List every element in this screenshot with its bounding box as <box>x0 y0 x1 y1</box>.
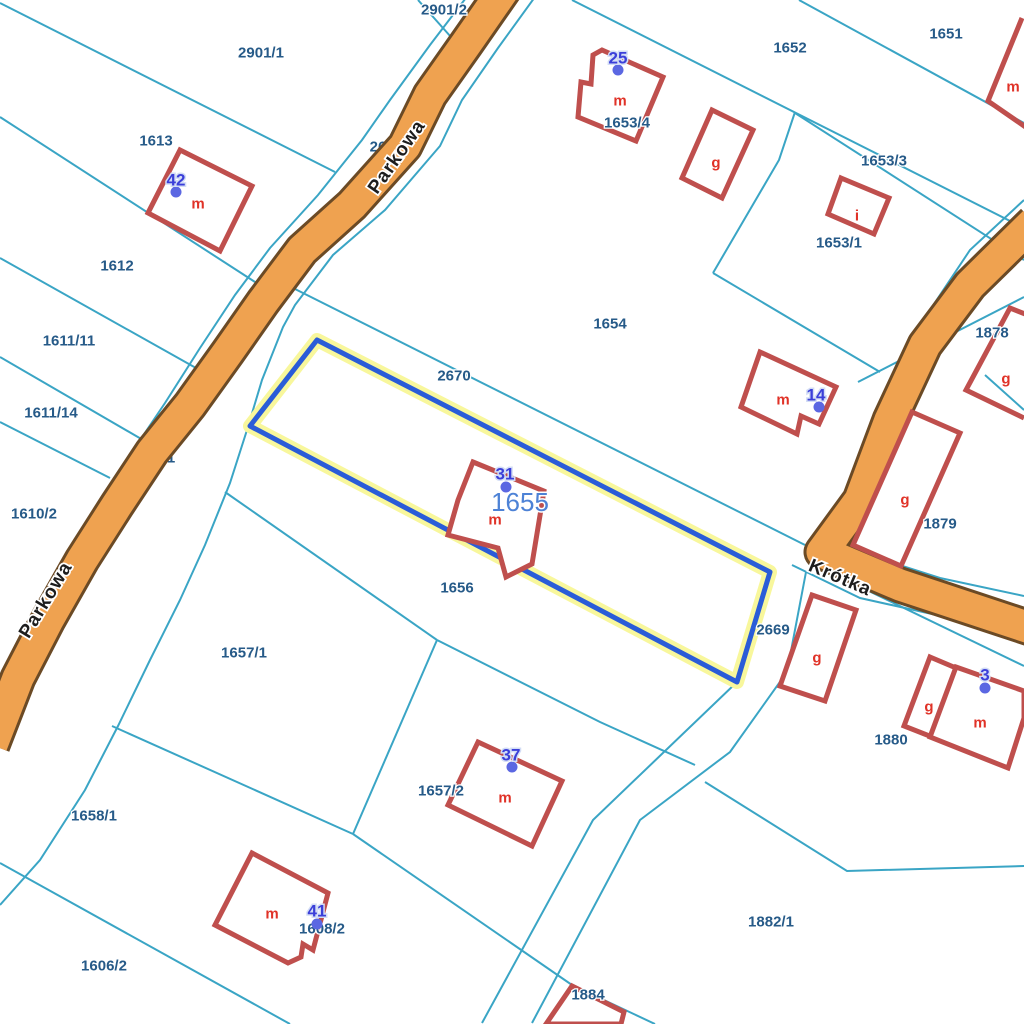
parcel-number-label: 2901/1 <box>238 45 284 62</box>
building-type-letter: m <box>1006 79 1019 96</box>
building-type-letter: g <box>900 492 909 509</box>
parcel-number-label: 2670 <box>437 368 470 385</box>
building-type-letter: m <box>191 196 204 213</box>
parcel-boundary-line <box>0 357 143 440</box>
building-type-letter: m <box>613 93 626 110</box>
parcel-number-label: 1657/2 <box>418 783 464 800</box>
building-type-letter: i <box>855 208 859 225</box>
building-type-letter: m <box>498 790 511 807</box>
building-type-letter: m <box>776 392 789 409</box>
parcel-number-label: 1606/2 <box>81 958 127 975</box>
address-number-label: 41 <box>308 902 327 921</box>
parcel-number-label: 1654 <box>593 316 627 333</box>
road-parkowa <box>0 0 505 745</box>
parcel-boundary-line <box>713 273 880 372</box>
parcel-number-label: 1653/3 <box>861 153 907 170</box>
building-type-letter: g <box>812 650 821 667</box>
parcel-number-label: 1653/4 <box>604 115 651 132</box>
parcel-number-label: 2669 <box>756 622 789 639</box>
address-number-label: 37 <box>502 746 521 765</box>
address-number-label: 42 <box>167 171 186 190</box>
parcel-boundary-line <box>112 726 353 834</box>
parcel-boundary-line <box>482 682 737 1023</box>
parcel-boundary-line <box>353 834 572 985</box>
parcel-number-label: 2901/2 <box>421 2 467 19</box>
building-type-letter: g <box>711 155 720 172</box>
address-number-label: 25 <box>609 49 628 68</box>
parcel-number-label: 1879 <box>923 516 956 533</box>
map-viewport[interactable]: 261 ParkowaParkowaKrótka 2901/22901/1161… <box>0 0 1024 1024</box>
parcel-boundary-line <box>0 258 196 368</box>
parcel-number-label: 1878 <box>975 325 1008 342</box>
building-type-letter: m <box>973 715 986 732</box>
parcel-number-label: 1611/11 <box>43 333 96 350</box>
parcel-number-label: 1611/14 <box>24 405 78 422</box>
building-type-letter: m <box>265 906 278 923</box>
selected-parcel-label: 1655 <box>491 487 549 517</box>
parcel-boundary-line <box>293 288 805 545</box>
parcel-boundary-line <box>705 782 1024 871</box>
parcel-number-label: 1613 <box>139 133 172 150</box>
parcel-number-label: 1884 <box>571 987 605 1004</box>
address-number-label: 14 <box>807 386 826 405</box>
parcel-number-label: 1880 <box>874 732 907 749</box>
parcel-boundary-line <box>353 640 437 834</box>
parcel-boundary-line <box>0 422 110 478</box>
parcel-number-label: 1653/1 <box>816 235 862 252</box>
parcel-number-label: 1652 <box>773 40 806 57</box>
address-number-label: 31 <box>496 465 515 484</box>
parcel-number-label: 1610/2 <box>11 506 57 523</box>
parcel-number-label: 1658/1 <box>71 808 117 825</box>
building-type-letter: g <box>924 699 933 716</box>
building-type-letter: g <box>1001 371 1010 388</box>
address-number-label: 3 <box>980 666 989 685</box>
parcel-number-label: 1612 <box>100 258 133 275</box>
parcel-number-label: 1651 <box>929 26 962 43</box>
parcel-number-label: 1882/1 <box>748 914 794 931</box>
building-outline <box>828 178 889 234</box>
parcel-number-label: 1657/1 <box>221 645 267 662</box>
building-outline <box>780 595 856 701</box>
building-outline <box>988 18 1024 128</box>
cadastral-map[interactable]: 261 ParkowaParkowaKrótka 2901/22901/1161… <box>0 0 1024 1024</box>
roads <box>0 0 1024 745</box>
parcel-boundary-line <box>0 0 540 905</box>
parcel-number-label: 1656 <box>440 580 473 597</box>
